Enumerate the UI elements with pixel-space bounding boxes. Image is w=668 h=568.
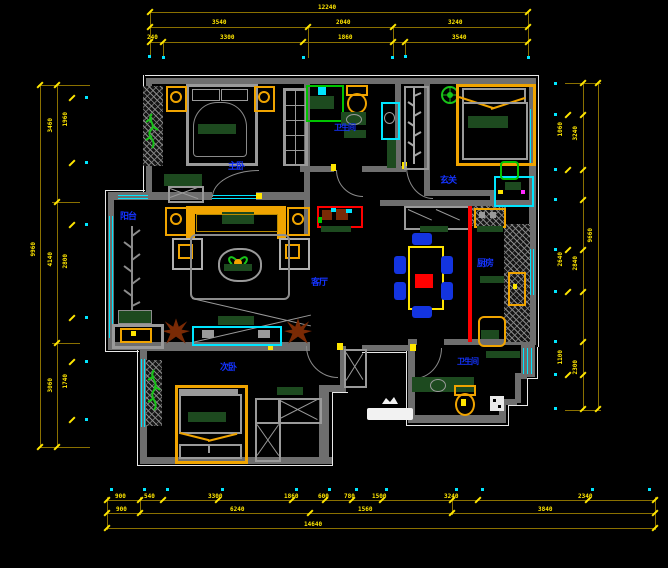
outline bbox=[105, 190, 145, 191]
room-label-bedroom3: 次卧 bbox=[220, 364, 236, 373]
console-ornament bbox=[318, 217, 322, 223]
dim-text: 14640 bbox=[304, 522, 322, 528]
axis-dot bbox=[355, 488, 358, 491]
tv bbox=[218, 316, 254, 325]
window-kitchen bbox=[533, 249, 534, 295]
desk-item bbox=[521, 190, 525, 194]
dim-text: 1560 bbox=[358, 507, 372, 513]
dim-text: 3240 bbox=[573, 126, 579, 140]
dim-tick bbox=[564, 371, 571, 378]
dim-tick bbox=[68, 416, 75, 423]
room-label-living: 客厅 bbox=[311, 279, 327, 288]
dim-tick bbox=[651, 524, 658, 531]
plant-icon bbox=[143, 112, 161, 150]
room-label-entry: 玄关 bbox=[440, 177, 456, 186]
dim-text: 600 bbox=[318, 494, 329, 500]
room-label-bath2: 卫生间 bbox=[457, 358, 478, 366]
dining-chair bbox=[412, 233, 432, 245]
console-ornament bbox=[331, 208, 336, 212]
axis-dot bbox=[527, 56, 530, 59]
dim-ext bbox=[38, 447, 90, 448]
watermark-bar bbox=[367, 408, 413, 420]
dim-text: 4140 bbox=[48, 252, 54, 266]
dim-line bbox=[57, 85, 58, 447]
dim-tick bbox=[564, 166, 571, 173]
dining-chair bbox=[412, 306, 432, 318]
room-label-bath1: 卫生间 bbox=[334, 124, 355, 132]
sink-dot bbox=[513, 284, 517, 289]
dining-centerpiece bbox=[415, 274, 433, 288]
axis-dot bbox=[554, 290, 557, 293]
dim-line bbox=[150, 42, 528, 43]
shower-head-icon bbox=[318, 87, 326, 95]
dim-text: 1960 bbox=[63, 112, 69, 126]
threshold bbox=[118, 195, 148, 196]
outline bbox=[332, 392, 348, 393]
axis-dot bbox=[554, 373, 557, 376]
dim-ext bbox=[308, 27, 309, 58]
dim-tick bbox=[68, 221, 75, 228]
hanging-rail-icon bbox=[407, 88, 422, 164]
dim-text: 2800 bbox=[63, 254, 69, 268]
axis-dot bbox=[162, 56, 165, 59]
dim-text: 9660 bbox=[588, 228, 594, 242]
plant-icon bbox=[146, 368, 162, 412]
counter-front bbox=[477, 226, 503, 232]
watermark-icon bbox=[380, 396, 400, 406]
bedroom1-door-arc bbox=[212, 170, 259, 197]
axis-dot bbox=[295, 488, 298, 491]
counter-shelf bbox=[480, 276, 504, 283]
outline bbox=[508, 405, 509, 425]
balcony-table-inner bbox=[120, 328, 152, 343]
dim-text: 900 bbox=[115, 494, 126, 500]
outline bbox=[406, 425, 509, 426]
bed2-inner bbox=[462, 102, 528, 160]
wall-hall-bottom bbox=[362, 345, 408, 351]
dim-text: 1740 bbox=[63, 374, 69, 388]
axis-dot bbox=[85, 223, 88, 226]
window-kitchen bbox=[530, 249, 531, 295]
shelf bbox=[277, 387, 303, 395]
axis-dot bbox=[328, 488, 331, 491]
balcony-chest bbox=[118, 310, 152, 324]
axis-dot bbox=[85, 96, 88, 99]
window-balcony bbox=[112, 216, 113, 338]
wall-bedroom3-right bbox=[319, 385, 329, 464]
dim-text: 3240 bbox=[444, 494, 458, 500]
lamp-icon bbox=[170, 213, 182, 225]
axis-dot bbox=[554, 407, 557, 410]
console-shelf bbox=[321, 226, 351, 232]
dim-text: 1100 bbox=[558, 350, 564, 364]
dim-line bbox=[107, 513, 655, 514]
dim-ext bbox=[38, 85, 90, 86]
axis-dot bbox=[554, 168, 557, 171]
desk-item bbox=[498, 190, 503, 194]
desk-chair bbox=[500, 161, 519, 180]
floor-plan-canvas: 12240 3540 2040 3240 240 3300 1860 3540 … bbox=[0, 0, 668, 568]
dim-text: 3300 bbox=[208, 494, 222, 500]
tv-cabinet-box bbox=[202, 330, 214, 338]
bath2-door-arc bbox=[414, 348, 442, 379]
dim-text: 2300 bbox=[573, 360, 579, 374]
dining-chair bbox=[441, 256, 453, 274]
axis-dot bbox=[143, 488, 146, 491]
room-label-master: 主卧 bbox=[228, 163, 244, 172]
dim-tick bbox=[68, 159, 75, 166]
outline bbox=[362, 352, 407, 353]
outline bbox=[527, 378, 528, 405]
desk-item bbox=[505, 182, 521, 190]
dresser-top bbox=[164, 174, 202, 186]
dim-text: 1860 bbox=[338, 35, 352, 41]
dining-chair bbox=[441, 282, 453, 300]
outline bbox=[137, 465, 333, 466]
coffee-table-shelf bbox=[224, 264, 252, 271]
bench-cushion bbox=[420, 226, 448, 232]
dim-text: 1500 bbox=[372, 494, 386, 500]
room-label-balcony: 阳台 bbox=[120, 213, 136, 222]
dim-tick bbox=[564, 246, 571, 253]
stove bbox=[474, 208, 506, 228]
axis-dot bbox=[110, 488, 113, 491]
dim-text: 3840 bbox=[538, 507, 552, 513]
bed3-pillow bbox=[188, 412, 226, 422]
dim-tick bbox=[68, 358, 75, 365]
axis-dot bbox=[85, 360, 88, 363]
dim-text: 2840 bbox=[573, 256, 579, 270]
outline bbox=[538, 75, 539, 347]
dim-text: 2340 bbox=[578, 494, 592, 500]
axis-dot bbox=[85, 316, 88, 319]
axis-dot bbox=[302, 56, 305, 59]
kitchen-sink bbox=[508, 272, 526, 306]
dim-text: 3240 bbox=[448, 20, 462, 26]
drain-dot bbox=[498, 405, 501, 408]
dim-tick bbox=[68, 314, 75, 321]
dim-text: 780 bbox=[344, 494, 355, 500]
outline bbox=[105, 351, 139, 352]
axis-dot bbox=[591, 488, 594, 491]
window-bedroom3 bbox=[141, 359, 142, 427]
dim-text: 9960 bbox=[31, 242, 37, 256]
dim-tick bbox=[68, 94, 75, 101]
dim-text: 6240 bbox=[230, 507, 244, 513]
wall-living-top-b bbox=[256, 192, 310, 200]
toilet-bowl bbox=[347, 93, 367, 114]
threshold bbox=[212, 198, 256, 199]
bed-blanket bbox=[198, 124, 236, 134]
toilet2-seat bbox=[461, 399, 466, 406]
lamp-icon bbox=[292, 213, 304, 225]
lamp-icon bbox=[258, 91, 270, 103]
axis-dot bbox=[85, 418, 88, 421]
axis-dot bbox=[481, 488, 484, 491]
threshold bbox=[118, 198, 148, 199]
window-bath2 bbox=[523, 348, 524, 374]
outline bbox=[105, 190, 106, 352]
outline bbox=[527, 378, 538, 379]
wardrobe-master bbox=[283, 88, 308, 166]
dim-text: 12240 bbox=[318, 5, 336, 11]
burner bbox=[490, 212, 496, 218]
bath2-basin bbox=[430, 379, 446, 392]
dim-line bbox=[598, 83, 599, 410]
burner bbox=[479, 212, 485, 218]
wall-bedroom2-bottom bbox=[424, 190, 494, 196]
dim-text: 2040 bbox=[336, 20, 350, 26]
dim-ext bbox=[528, 12, 529, 58]
axis-dot bbox=[554, 248, 557, 251]
dining-chair bbox=[394, 282, 406, 300]
bath1-door-arc bbox=[336, 170, 363, 197]
axis-dot bbox=[404, 55, 407, 58]
bed-pillow bbox=[221, 89, 248, 101]
dim-line bbox=[150, 27, 528, 28]
axis-dot bbox=[648, 488, 651, 491]
dim-text: 3460 bbox=[48, 118, 54, 132]
axis-dot bbox=[85, 161, 88, 164]
dim-tick bbox=[564, 288, 571, 295]
dim-text: 1060 bbox=[558, 122, 564, 136]
plant-icon bbox=[162, 316, 190, 346]
axis-dot bbox=[148, 55, 151, 58]
outline bbox=[332, 392, 333, 466]
dim-text: 3060 bbox=[48, 378, 54, 392]
outline bbox=[137, 348, 138, 466]
dim-tick bbox=[579, 405, 586, 412]
wall-bath2-bottom bbox=[408, 415, 506, 423]
dim-line bbox=[40, 85, 41, 447]
dining-chair bbox=[394, 256, 406, 274]
dim-text: 3300 bbox=[220, 35, 234, 41]
bed3-bench-divider bbox=[208, 446, 210, 453]
axis-dot bbox=[221, 488, 224, 491]
console-ornament bbox=[346, 209, 352, 213]
outline bbox=[508, 405, 528, 406]
outline bbox=[145, 75, 539, 76]
bed3-bench bbox=[179, 444, 242, 459]
dim-tick bbox=[594, 405, 601, 412]
axis-dot bbox=[385, 488, 388, 491]
bedroom3-door-arc bbox=[306, 346, 338, 378]
axis-dot bbox=[166, 488, 169, 491]
dim-text: 2640 bbox=[558, 252, 564, 266]
lamp-icon bbox=[170, 91, 182, 103]
dim-text: 3540 bbox=[212, 20, 226, 26]
axis-dot bbox=[554, 340, 557, 343]
tv-cabinet-box bbox=[258, 330, 270, 338]
shower-bench bbox=[310, 96, 334, 109]
axis-dot bbox=[455, 488, 458, 491]
window-bedroom3 bbox=[144, 359, 145, 427]
dim-text: 3540 bbox=[452, 35, 466, 41]
wall-bath1-bottom-a bbox=[300, 166, 334, 172]
window-balcony bbox=[109, 216, 110, 338]
axis-dot bbox=[554, 198, 557, 201]
dim-line bbox=[107, 528, 655, 529]
stool-seat bbox=[481, 330, 499, 339]
dim-text: 240 bbox=[147, 35, 158, 41]
partition-red bbox=[468, 206, 472, 342]
room-label-kitchen: 厨房 bbox=[477, 260, 493, 269]
dim-line bbox=[150, 12, 528, 13]
balcony-table-dot bbox=[131, 331, 136, 336]
bed-pillow bbox=[192, 89, 220, 101]
plant-stand-icon bbox=[122, 226, 142, 314]
drain-dot bbox=[493, 399, 496, 402]
dim-tick bbox=[564, 111, 571, 118]
outline bbox=[537, 347, 538, 378]
axis-dot bbox=[391, 56, 394, 59]
dim-text: 900 bbox=[116, 507, 127, 513]
dim-text: 1860 bbox=[284, 494, 298, 500]
plant-icon bbox=[284, 316, 312, 346]
axis-dot bbox=[554, 113, 557, 116]
dim-text: 540 bbox=[144, 494, 155, 500]
entry-door-arc bbox=[406, 166, 433, 199]
axis-dot bbox=[554, 82, 557, 85]
washer-drum bbox=[384, 112, 395, 124]
window-bath2 bbox=[531, 348, 532, 374]
window-bath2 bbox=[527, 348, 528, 374]
bath2-bench bbox=[486, 351, 520, 358]
sofa-seat bbox=[196, 214, 278, 232]
bath-shelf bbox=[387, 140, 396, 168]
